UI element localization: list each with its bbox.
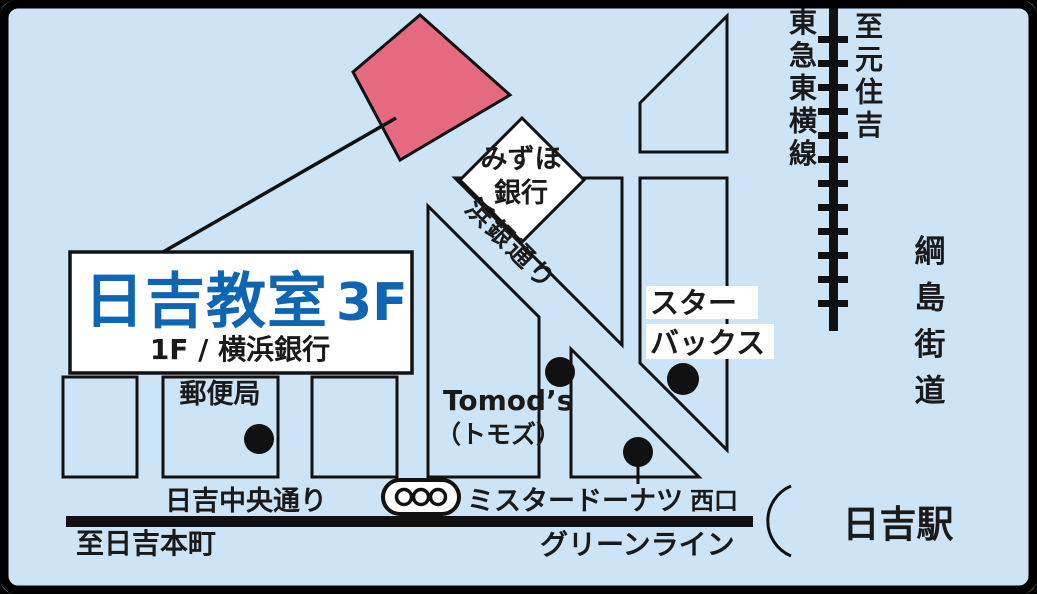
destination-title: 日吉教室 xyxy=(84,267,328,337)
mister-donut-logo xyxy=(383,480,459,514)
railway-tie xyxy=(818,276,848,283)
mizuho-bank-label-line1: みずほ xyxy=(481,144,562,175)
railway-tie xyxy=(818,228,848,235)
railway-tie xyxy=(818,36,848,43)
hiyoshi-chuo-dori-label: 日吉中央通り xyxy=(165,486,327,517)
railway-tie xyxy=(818,84,848,91)
to-motosumiyoshi-label: 至元住吉 xyxy=(855,10,883,141)
hiyoshi-station-label: 日吉駅 xyxy=(843,503,954,546)
tomods-label-jp: （トモズ） xyxy=(436,420,561,449)
starbucks-label-line2: バックス xyxy=(650,326,765,360)
tomods-label-en: Tomod’s xyxy=(443,384,573,417)
railway-tie xyxy=(818,108,848,115)
donut-ring-icon xyxy=(414,490,429,505)
railway-tie xyxy=(818,180,848,187)
railway-tie xyxy=(818,156,848,163)
mister-donut-dot xyxy=(623,437,653,467)
west-exit-label: 西口 xyxy=(690,487,738,515)
green-line-label: グリーンライン xyxy=(540,528,735,561)
destination-subtitle: 1F / 横浜銀行 xyxy=(150,333,330,366)
block-west xyxy=(63,377,137,477)
post-office-dot xyxy=(244,424,274,454)
donut-ring-icon xyxy=(397,490,412,505)
destination-floor: 3F xyxy=(336,273,408,333)
railway-tie xyxy=(818,132,848,139)
post-office-label: 郵便局 xyxy=(180,379,261,410)
donut-ring-icon xyxy=(431,490,446,505)
block-center xyxy=(312,377,397,477)
green-line-bar xyxy=(66,516,753,527)
railway-tie xyxy=(818,60,848,67)
tomods-dot xyxy=(545,357,575,387)
starbucks-label-line1: スター xyxy=(650,286,737,320)
mizuho-bank-label-line2: 銀行 xyxy=(494,177,548,209)
hiyoshi-access-map: 日吉教室 3F 1F / 横浜銀行 みずほ 銀行 浜銀通り 郵便局 Tomod’… xyxy=(0,0,1037,594)
to-hiyoshi-honcho-label: 至日吉本町 xyxy=(76,527,216,560)
railway-tie xyxy=(818,204,848,211)
starbucks-dot xyxy=(667,363,699,395)
railway-tie xyxy=(818,300,848,307)
railway-tie xyxy=(818,252,848,259)
tokyu-toyoko-line-label: 東急東横線 xyxy=(789,6,817,170)
mister-donut-label: ミスタードーナツ xyxy=(467,486,683,517)
